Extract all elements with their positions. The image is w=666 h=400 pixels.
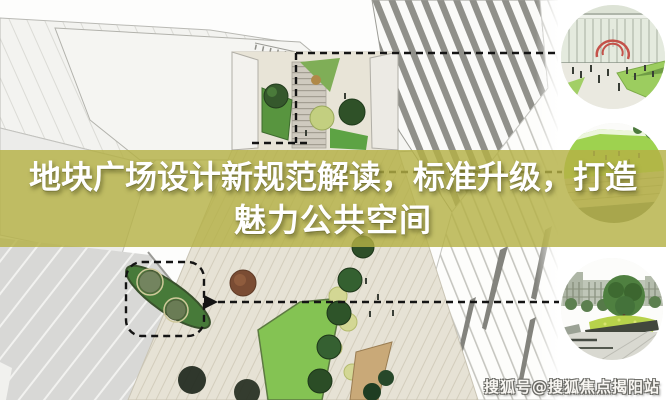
courtyard-tree-thumb xyxy=(561,258,663,360)
title-line-1: 地块广场设计新规范解读，标准升级，打造 xyxy=(29,157,637,197)
title-line-2: 魅力公共空间 xyxy=(234,200,432,240)
detail-circle-courtyard-tree xyxy=(561,258,663,360)
article-cover-image: 地块广场设计新规范解读，标准升级，打造 魅力公共空间 搜狐号@搜狐焦点揭阳站 xyxy=(0,0,666,400)
watermark-text: 搜狐号@搜狐焦点揭阳站 xyxy=(484,376,660,397)
title-band: 地块广场设计新规范解读，标准升级，打造 魅力公共空间 xyxy=(0,150,666,247)
detail-circle-sculpture-plaza xyxy=(561,5,665,109)
sunken-plaza xyxy=(232,52,398,150)
sculpture-plaza-thumb xyxy=(561,5,665,109)
